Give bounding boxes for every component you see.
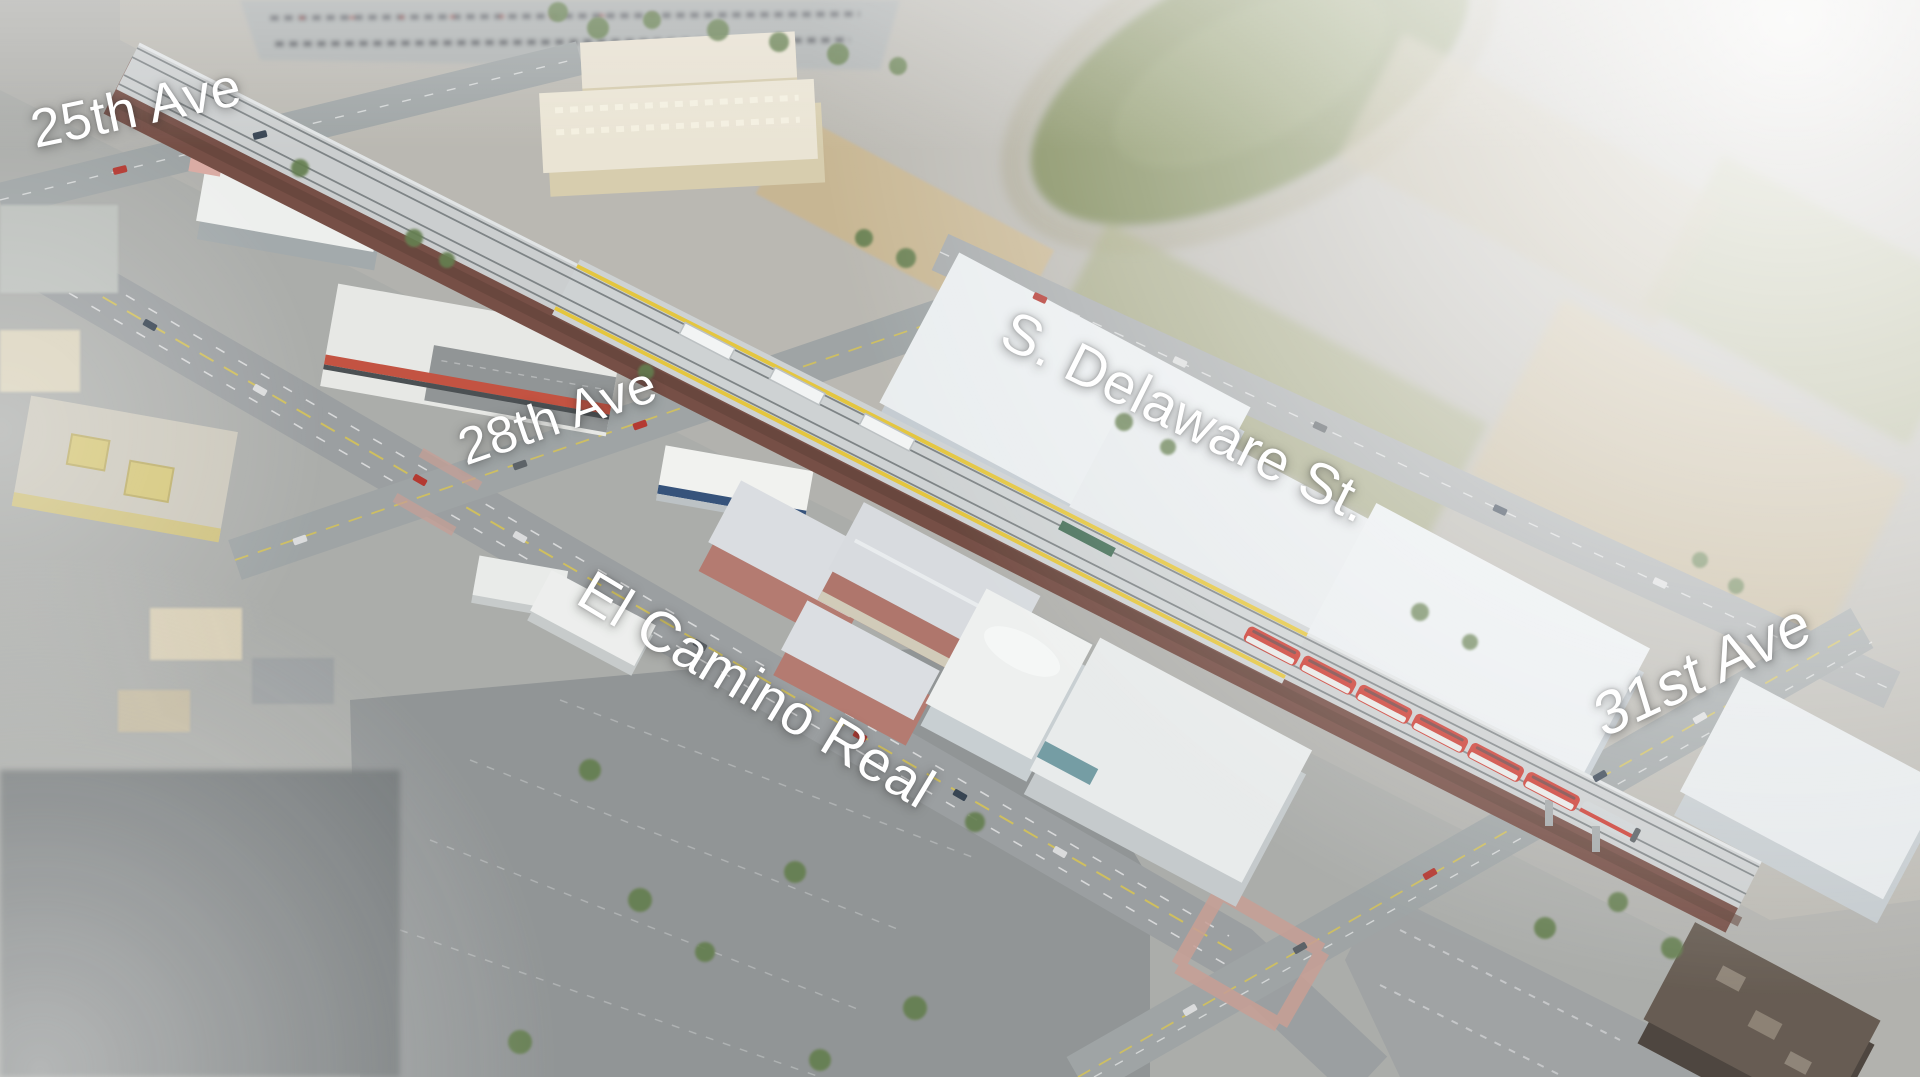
aerial-rendering: 25th Ave 28th Ave S. Delaware St. El Cam…: [0, 0, 1920, 1077]
scene-svg: [0, 0, 1920, 1077]
global-veil: [0, 0, 1920, 1077]
edge-haze: [0, 0, 1920, 1077]
